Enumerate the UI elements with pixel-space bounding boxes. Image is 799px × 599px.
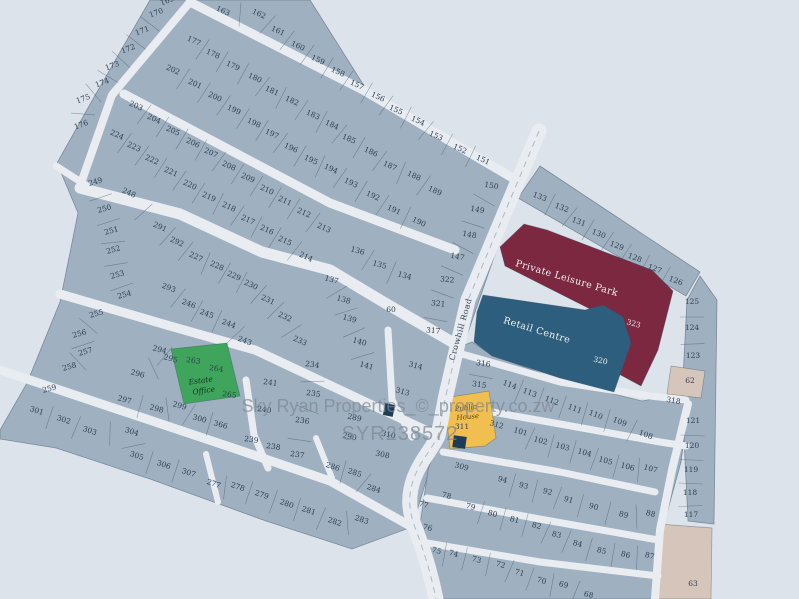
plot-label-125: 125: [685, 297, 700, 306]
estate-map: 1691701711721731741751762492502512522532…: [0, 0, 799, 599]
plot-label-119: 119: [684, 465, 699, 474]
plot-label-118: 118: [683, 488, 698, 497]
plot-label-124: 124: [685, 323, 700, 332]
plot-label-120: 120: [685, 441, 700, 450]
estate-map-svg: 1691701711721731741751762492502512522532…: [0, 0, 799, 599]
watermark-line1: Sky Ryan Properties_©_property.co.zw: [241, 396, 555, 417]
plot-label-321: 321: [431, 298, 446, 308]
watermark-line2: SYR238572: [342, 423, 459, 445]
plot-label-62: 62: [685, 376, 695, 385]
plot-label-317: 317: [426, 325, 441, 335]
plot-label-63: 63: [688, 579, 698, 588]
plot-label-123: 123: [686, 351, 701, 360]
plot-label-60: 60: [386, 305, 396, 314]
plot-label-322: 322: [440, 274, 455, 284]
plot-label-117: 117: [684, 510, 699, 519]
plot-label-121: 121: [686, 416, 700, 425]
